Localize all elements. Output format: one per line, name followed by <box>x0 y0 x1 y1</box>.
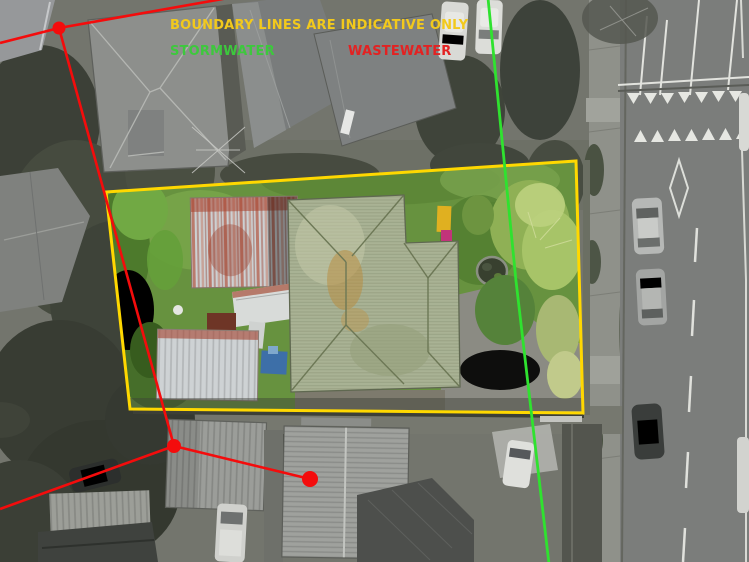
bottom-driveway <box>264 430 283 562</box>
boundary-disclaimer-text: BOUNDARY LINES ARE INDICATIVE ONLY <box>170 18 468 33</box>
boundary-shadow <box>110 398 585 411</box>
bottom-house-a <box>165 419 266 510</box>
road-car-white-partial <box>739 93 749 151</box>
blue-bin <box>268 346 278 354</box>
driveway-apron-2 <box>586 356 620 384</box>
aerial-property-photo: BOUNDARY LINES ARE INDICATIVE ONLY STORM… <box>0 0 749 562</box>
wastewater-label: WASTEWATER <box>348 44 452 59</box>
stormwater-label: STORMWATER <box>170 44 275 59</box>
driveway-apron-1 <box>586 98 620 122</box>
bottom-van-white <box>215 503 248 562</box>
bottom-structure-right <box>562 424 602 562</box>
aerial-photo <box>0 0 749 562</box>
property-parcel <box>90 150 595 420</box>
verge-strip <box>583 160 590 415</box>
parked-car-white-2 <box>475 0 503 54</box>
road-car-black <box>631 403 665 460</box>
rusty-shed-roof <box>190 196 299 288</box>
road-car-silver-1 <box>632 197 665 254</box>
road-car-silver-2 <box>636 268 668 325</box>
white-fence <box>540 416 582 422</box>
white-shed-roof <box>156 329 258 401</box>
road-van-partial <box>737 437 749 513</box>
